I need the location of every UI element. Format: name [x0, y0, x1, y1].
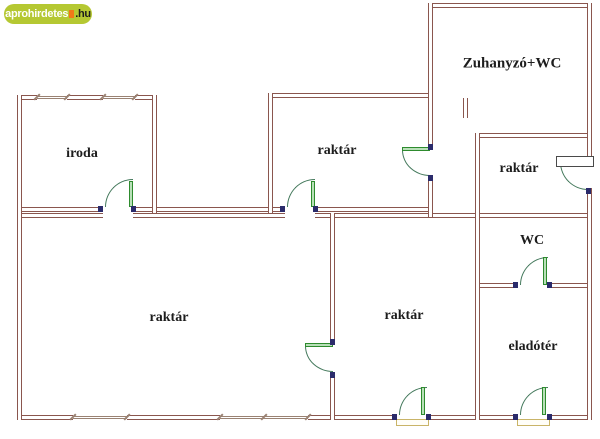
wall-iroda-right	[152, 95, 157, 213]
door-jamb	[547, 414, 552, 420]
door-jamb	[428, 175, 433, 181]
site-logo-tld-text: .hu	[75, 8, 91, 20]
wall-bottom-a	[17, 415, 73, 420]
wall-raktar-right-top	[475, 133, 592, 138]
room-label-raktar-top: raktár	[318, 143, 357, 159]
wall-bottom-b	[127, 415, 220, 420]
door-panel-wc	[543, 257, 547, 285]
door-jamb	[513, 414, 518, 420]
room-label-iroda: iroda	[66, 146, 98, 162]
wall-raktar-top-top	[268, 93, 433, 98]
door-jamb	[280, 206, 285, 212]
wall-zuhanyzo-left-lower	[428, 175, 433, 217]
room-label-eladoter: eladótér	[509, 339, 558, 355]
door-jamb	[98, 206, 103, 212]
wall-exterior-left	[17, 95, 22, 420]
wall-corridor-stub	[463, 98, 468, 118]
room-label-raktar-big: raktár	[150, 310, 189, 326]
wall-zuhanyzo-left-upper	[428, 3, 433, 150]
door-panel-iroda	[129, 181, 133, 207]
door-threshold	[517, 419, 550, 426]
door-panel-raktar-top-right	[402, 147, 430, 151]
door-panel-raktar-mid-exterior	[421, 387, 425, 415]
wall-raktar-divider-lower	[330, 372, 335, 420]
site-logo: aprohirdetes .hu	[4, 4, 92, 24]
door-panel-raktar-divider	[305, 343, 333, 347]
wall-divider-upper-c	[315, 207, 433, 212]
wall-divider-lower-a	[17, 213, 103, 218]
door-jamb	[392, 414, 397, 420]
floorplan-canvas: aprohirdetes .hu	[0, 0, 600, 439]
door-threshold	[396, 419, 429, 426]
door-panel-eladoter-exterior	[542, 387, 546, 415]
door-jamb	[513, 282, 518, 288]
door-jamb	[313, 206, 318, 212]
door-jamb	[131, 206, 136, 212]
wall-exterior-right-upper	[587, 3, 592, 160]
site-logo-brand-text: aprohirdetes	[5, 8, 68, 20]
door-arc-raktar-divider	[305, 346, 333, 372]
wall-bottom-e	[548, 415, 592, 420]
door-jamb	[586, 188, 591, 194]
wall-divider-lower-b	[133, 213, 285, 218]
door-jamb	[330, 339, 335, 345]
wall-divider-upper-a	[17, 207, 103, 212]
room-label-raktar-mid: raktár	[385, 308, 424, 324]
wall-bottom-c	[308, 415, 397, 420]
wall-wc-bottom-right	[548, 283, 592, 288]
door-arc-raktar-top-right	[402, 150, 430, 176]
door-panel-raktar-top-inner	[311, 181, 315, 207]
wall-right-column-left	[475, 133, 480, 420]
door-jamb	[547, 282, 552, 288]
wall-raktar-top-left	[268, 93, 273, 213]
wall-iroda-top-mid	[67, 95, 103, 100]
logo-accent-mark-icon	[69, 10, 74, 18]
door-panel-raktar-right-exterior	[556, 156, 594, 167]
wall-exterior-right-lower	[587, 188, 592, 420]
wall-zuhanyzo-top	[428, 3, 592, 8]
wall-divider-lower-c	[315, 213, 592, 218]
room-label-zuhanyzo-wc: Zuhanyzó+WC	[463, 56, 562, 73]
door-jamb	[330, 372, 335, 378]
wall-raktar-divider-upper	[330, 213, 335, 345]
door-jamb	[426, 414, 431, 420]
window-raktar-big-bottom	[73, 416, 127, 419]
room-label-raktar-right: raktár	[500, 161, 539, 177]
room-label-wc: WC	[520, 233, 544, 249]
door-jamb	[428, 144, 433, 150]
wall-wc-bottom-left	[475, 283, 518, 288]
wall-bottom-d	[427, 415, 518, 420]
